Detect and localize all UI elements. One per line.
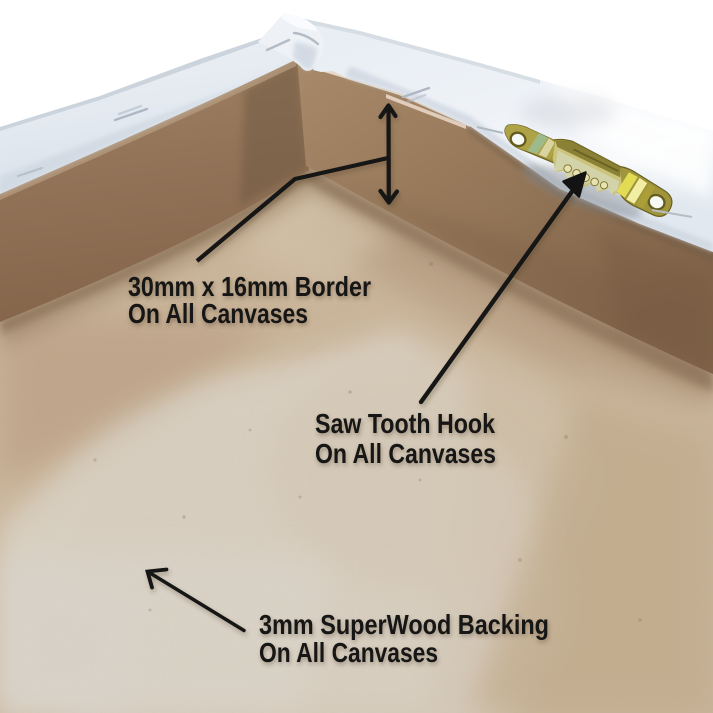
svg-text:Saw Tooth Hook: Saw Tooth Hook bbox=[315, 408, 496, 439]
svg-text:On All Canvases: On All Canvases bbox=[128, 298, 308, 329]
svg-text:On All Canvases: On All Canvases bbox=[259, 637, 438, 668]
svg-text:3mm SuperWood Backing: 3mm SuperWood Backing bbox=[259, 609, 549, 640]
svg-text:On All Canvases: On All Canvases bbox=[315, 438, 496, 469]
